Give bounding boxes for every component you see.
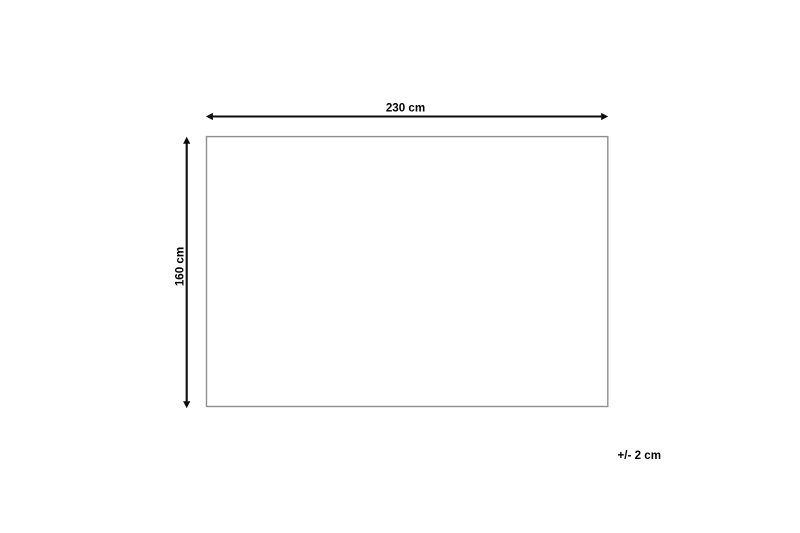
svg-text:230 cm: 230 cm xyxy=(386,102,425,115)
svg-text:160 cm: 160 cm xyxy=(173,247,186,286)
svg-text:+/- 2 cm: +/- 2 cm xyxy=(618,449,662,462)
